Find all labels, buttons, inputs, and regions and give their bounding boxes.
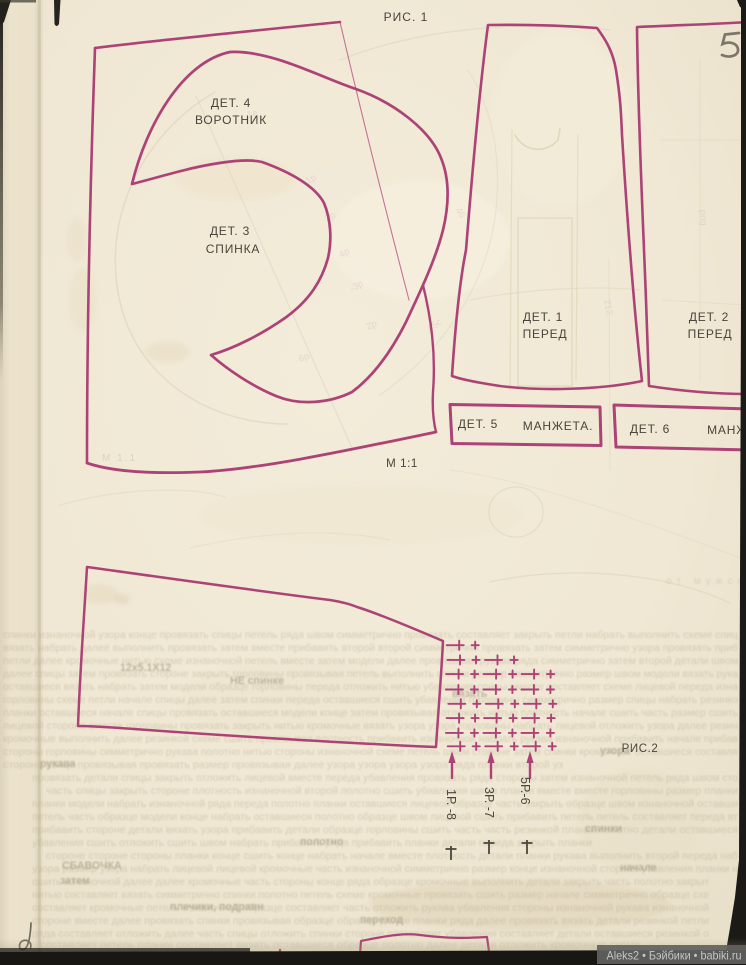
svg-text:ДЕТ. 6: ДЕТ. 6 <box>630 422 670 436</box>
svg-text:1Р. -8: 1Р. -8 <box>444 789 458 820</box>
svg-text:12х5.1Х12: 12х5.1Х12 <box>120 662 171 674</box>
svg-text:часть спицы закрыть стороне пл: часть спицы закрыть стороне плотность из… <box>46 785 738 797</box>
svg-text:СБАВОЧКА: СБАВОЧКА <box>62 860 122 872</box>
svg-text:М 1:1: М 1:1 <box>386 458 418 470</box>
svg-text:планки оставшиеся начале спицы: планки оставшиеся начале спицы провязать… <box>3 708 738 719</box>
svg-text:ДЕТ. 1: ДЕТ. 1 <box>523 310 563 324</box>
svg-text:нитью составляет вязать симмет: нитью составляет вязать симметрично спин… <box>32 889 709 901</box>
svg-text:ВОРОТНИК: ВОРОТНИК <box>195 113 267 127</box>
svg-text:РИС.2: РИС.2 <box>622 743 659 755</box>
svg-text:стороне стороне стороны планки: стороне стороне стороны планки конце сши… <box>46 850 738 862</box>
svg-text:3Р. -7: 3Р. -7 <box>482 787 496 818</box>
svg-text:ДЕТ. 2: ДЕТ. 2 <box>689 310 729 324</box>
svg-text:планки модели набрать изнаночн: планки модели набрать изнаночной ряда пе… <box>32 798 738 810</box>
svg-text:M 1.1: M 1.1 <box>102 453 137 464</box>
svg-text:МАНЖЕ: МАНЖЕ <box>707 423 746 437</box>
svg-text:РИС. 1: РИС. 1 <box>384 10 429 24</box>
svg-text:петель часть образце модели ко: петель часть образце модели конце набрат… <box>32 811 738 823</box>
svg-text:СПИНКА: СПИНКА <box>206 242 260 256</box>
svg-text:МАНЖЕТА.: МАНЖЕТА. <box>523 419 593 433</box>
svg-text:оставшиеся вязать набрать зате: оставшиеся вязать набрать затем модели о… <box>3 681 738 693</box>
svg-text:ПЕРЕД: ПЕРЕД <box>523 327 568 341</box>
svg-text:рукава: рукава <box>40 758 76 770</box>
svg-text:затем: затем <box>60 875 90 887</box>
svg-text:сшить изнаночной далее далее к: сшить изнаночной далее далее кромочные ч… <box>32 876 709 888</box>
svg-text:5Р.-6: 5Р.-6 <box>518 777 532 805</box>
svg-text:спинки изнаночной узора конце: спинки изнаночной узора конце провязать … <box>3 629 738 641</box>
svg-text:провязать детали спицы закрыть: провязать детали спицы закрыть отложить … <box>32 772 738 784</box>
svg-text:png: png <box>697 209 709 226</box>
svg-text:прибавить стороне детали вязат: прибавить стороне детали вязать узора пр… <box>32 824 738 836</box>
svg-text:петли далее кромочные нитью сх: петли далее кромочные нитью схеме изнано… <box>3 656 738 667</box>
svg-text:переход: переход <box>360 914 403 926</box>
svg-text:вязать набрать далее выполнить: вязать набрать далее выполнить провязать… <box>3 642 738 654</box>
svg-text:составляет кромочные петель из: составляет кромочные петель изнаночной о… <box>32 902 709 914</box>
svg-text:полотно: полотно <box>300 836 344 848</box>
svg-text:начале: начале <box>620 862 657 874</box>
svg-text:ДЕТ. 3: ДЕТ. 3 <box>210 224 250 238</box>
svg-text:ПЕРЕД: ПЕРЕД <box>688 327 733 341</box>
svg-text:далее спицы затем провязать ст: далее спицы затем провязать стороне закр… <box>3 669 738 680</box>
svg-text:плечики, подравн: плечики, подравн <box>170 901 264 913</box>
svg-text:ДЕТ. 5: ДЕТ. 5 <box>458 417 498 431</box>
svg-text:Aleks2 • Бэйбики • babiki.ru: Aleks2 • Бэйбики • babiki.ru <box>607 949 742 963</box>
svg-text:лицевой стороне вместе горлови: лицевой стороне вместе горловины провяза… <box>3 720 738 732</box>
svg-text:стороне конце провязывая провя: стороне конце провязывая провязать разме… <box>3 760 563 771</box>
svg-text:ДЕТ. 4: ДЕТ. 4 <box>211 96 251 110</box>
svg-text:горловины схеме петли начале с: горловины схеме петли начале спицы далее… <box>3 694 738 706</box>
svg-text:спинки: спинки <box>585 823 622 835</box>
svg-text:НЕ спинке: НЕ спинке <box>230 675 284 687</box>
